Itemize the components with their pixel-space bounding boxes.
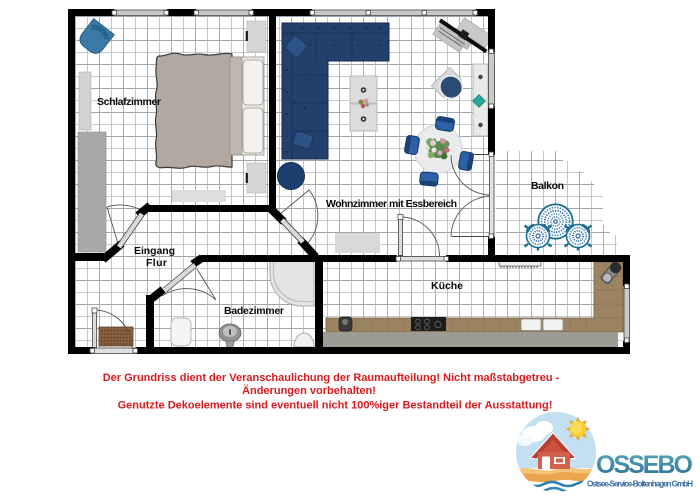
svg-text:Schlafzimmer: Schlafzimmer (97, 96, 161, 108)
svg-text:Der Grundriss dient der Verans: Der Grundriss dient der Veranschaulichun… (103, 372, 560, 384)
svg-text:Küche: Küche (431, 280, 463, 292)
svg-text:Badezimmer: Badezimmer (224, 305, 284, 317)
svg-text:Eingang: Eingang (134, 245, 175, 257)
svg-text:Flur: Flur (146, 257, 167, 269)
svg-text:Ostsee-Service-Boltenhagen Gmb: Ostsee-Service-Boltenhagen GmbH (587, 480, 693, 489)
svg-text:OSSEBO: OSSEBO (596, 451, 693, 479)
svg-text:Wohnzimmer mit Essbereich: Wohnzimmer mit Essbereich (326, 198, 457, 210)
svg-text:Genutzte Dekoelemente sind eve: Genutzte Dekoelemente sind eventuell nic… (118, 400, 553, 412)
svg-text:Balkon: Balkon (531, 180, 564, 192)
svg-text:Änderungen vorbehalten!: Änderungen vorbehalten! (242, 384, 376, 397)
